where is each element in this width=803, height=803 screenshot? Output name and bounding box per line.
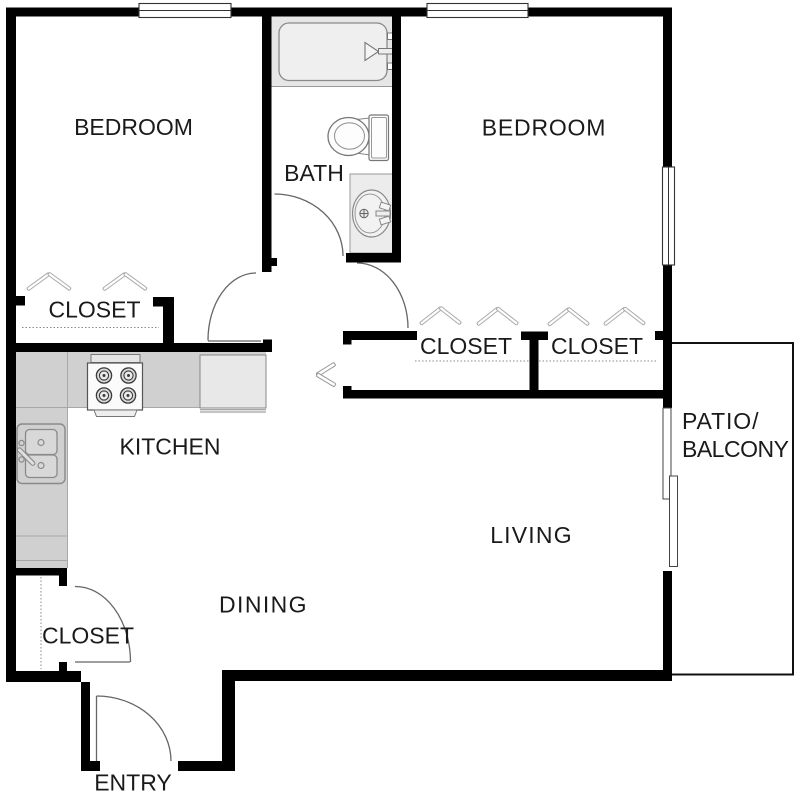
svg-text:BEDROOM: BEDROOM: [482, 115, 606, 141]
svg-text:BEDROOM: BEDROOM: [74, 114, 193, 140]
svg-text:CLOSET: CLOSET: [42, 623, 134, 649]
svg-text:CLOSET: CLOSET: [48, 297, 140, 323]
svg-text:CLOSET: CLOSET: [420, 333, 512, 359]
svg-text:CLOSET: CLOSET: [551, 333, 643, 359]
svg-text:KITCHEN: KITCHEN: [120, 434, 221, 460]
svg-text:BALCONY: BALCONY: [682, 436, 789, 462]
svg-text:PATIO/: PATIO/: [682, 408, 759, 434]
svg-text:LIVING: LIVING: [490, 522, 573, 548]
svg-text:BATH: BATH: [284, 160, 344, 186]
svg-text:DINING: DINING: [219, 592, 308, 618]
svg-text:ENTRY: ENTRY: [94, 770, 172, 796]
